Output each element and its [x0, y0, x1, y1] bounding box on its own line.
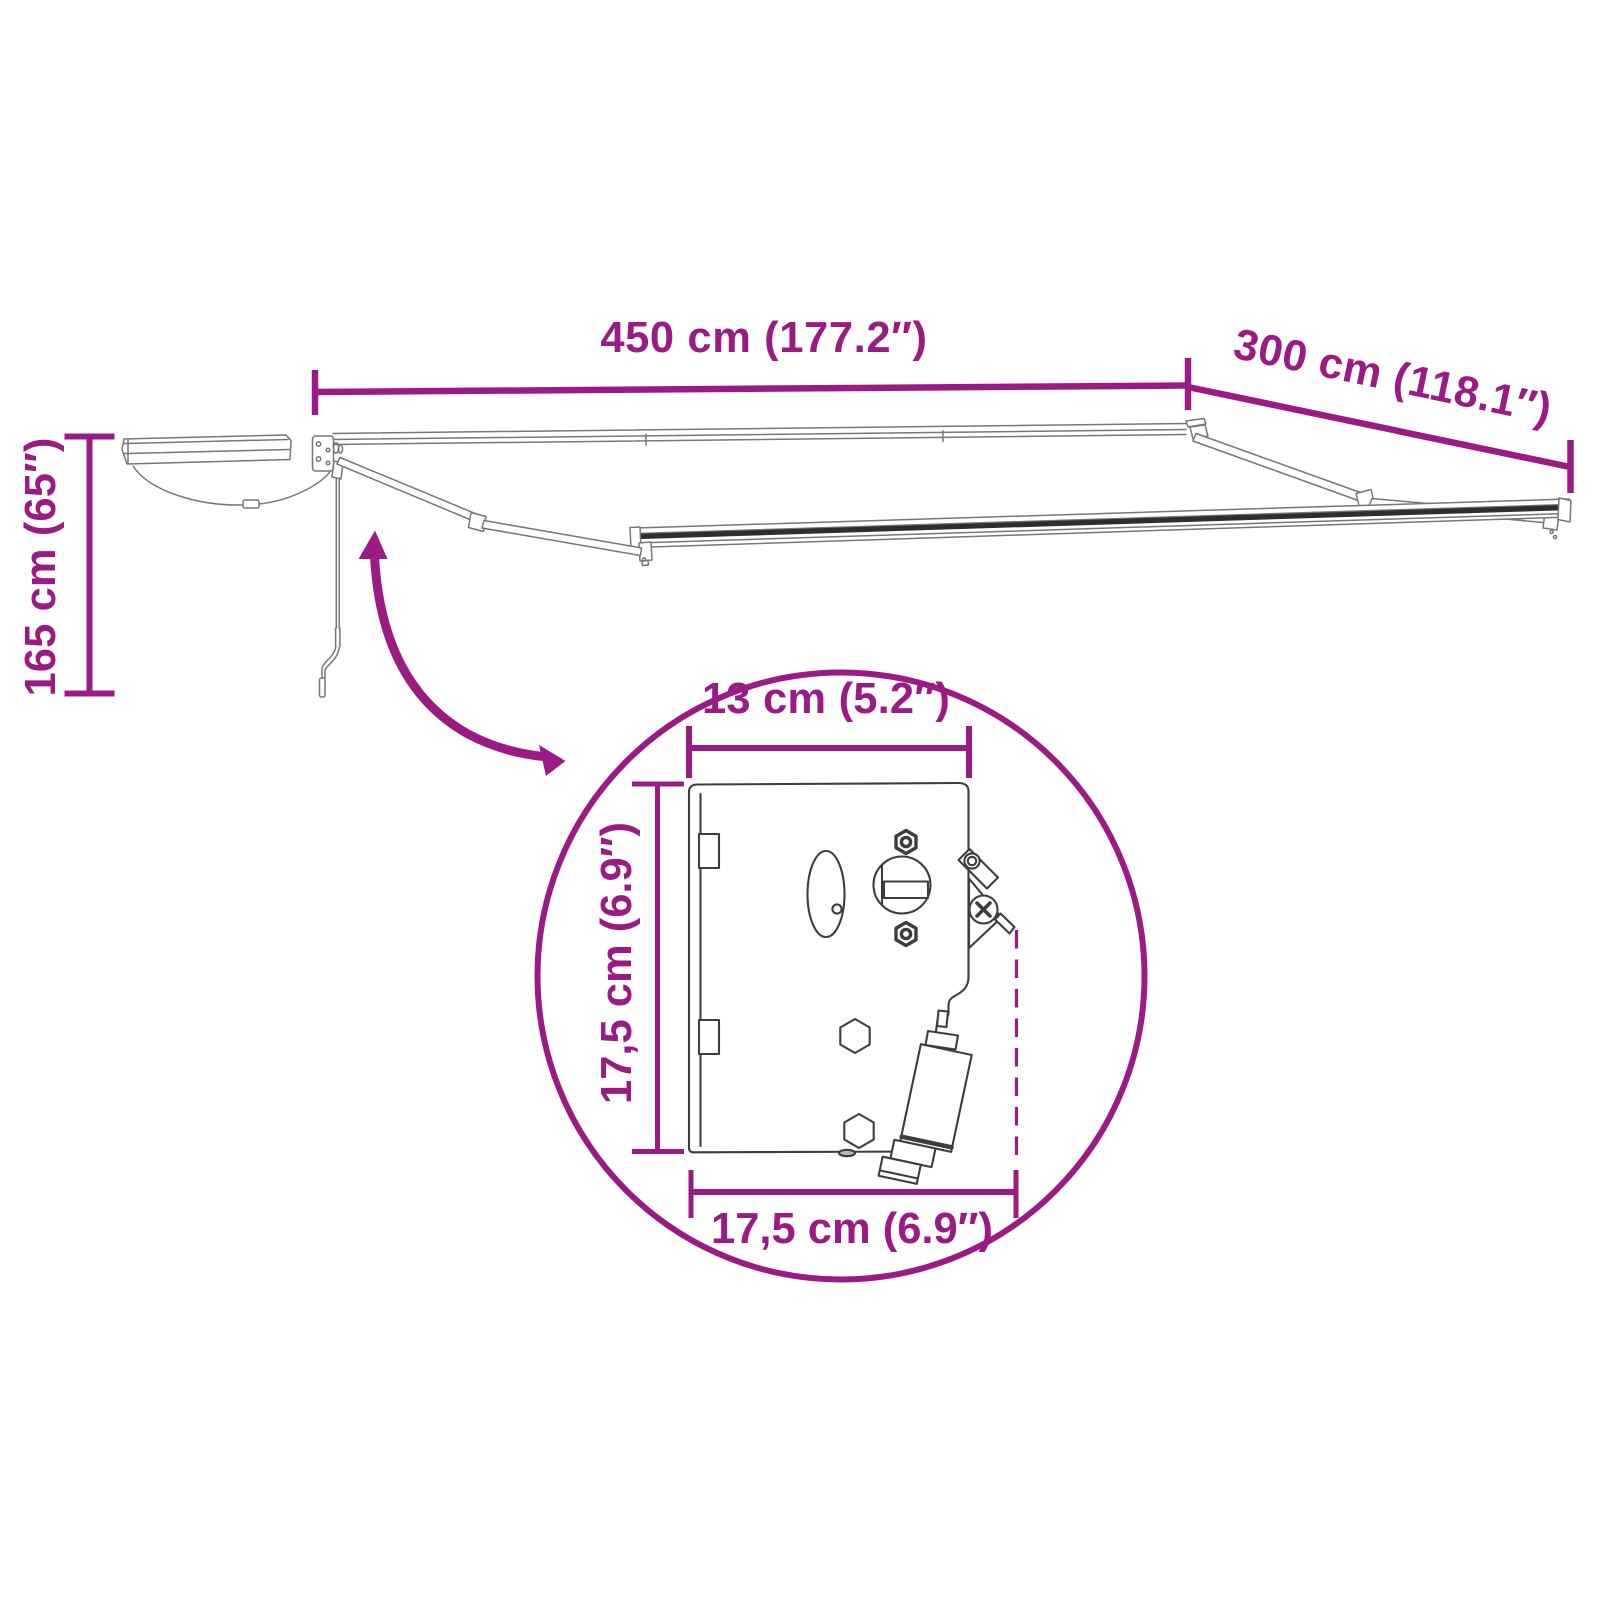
svg-text:165 cm (65″): 165 cm (65″): [17, 437, 65, 696]
svg-text:13 cm (5.2″): 13 cm (5.2″): [702, 675, 950, 723]
svg-text:17,5 cm (6.9″): 17,5 cm (6.9″): [593, 822, 641, 1104]
svg-text:450 cm (177.2″): 450 cm (177.2″): [600, 314, 927, 362]
svg-text:17,5 cm (6.9″): 17,5 cm (6.9″): [711, 1205, 993, 1253]
